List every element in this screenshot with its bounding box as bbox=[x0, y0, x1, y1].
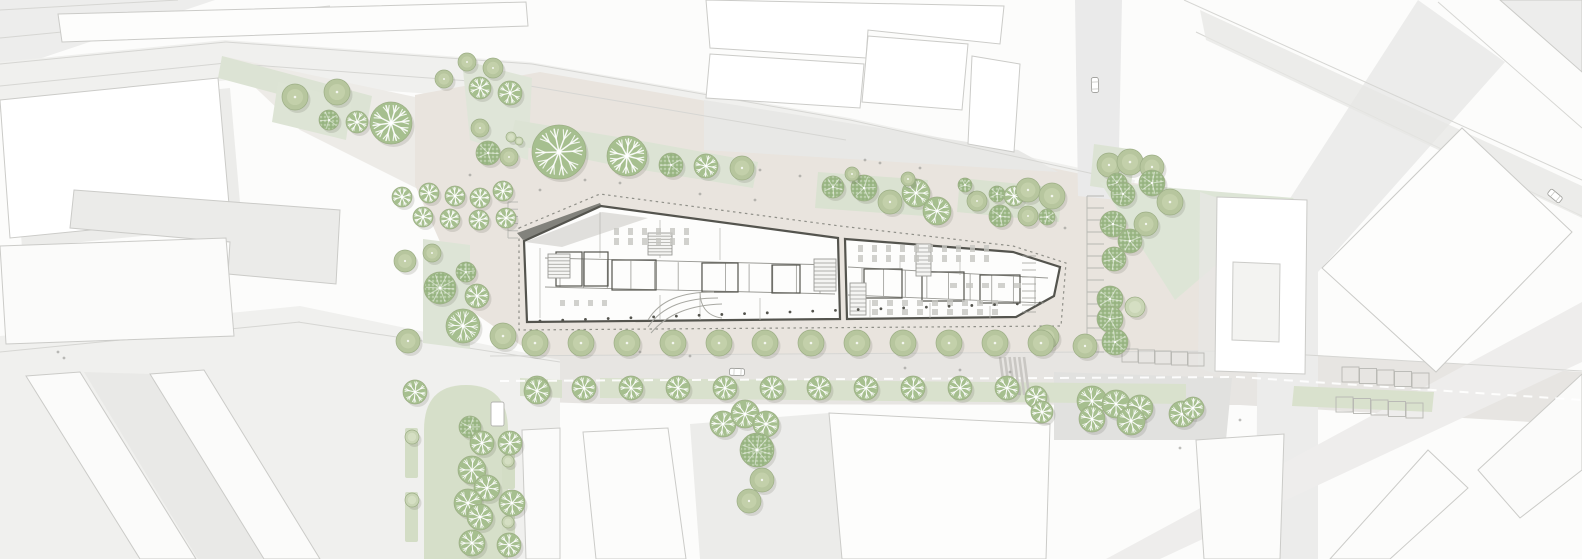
furniture bbox=[966, 283, 973, 288]
tree-center bbox=[863, 187, 865, 189]
tree-center bbox=[404, 260, 406, 262]
ground-dot bbox=[539, 189, 542, 192]
tree-center bbox=[466, 61, 468, 63]
furniture bbox=[642, 228, 647, 235]
tree-center bbox=[915, 192, 918, 195]
tree-center bbox=[771, 387, 773, 389]
ground-dot bbox=[864, 159, 867, 162]
ctx-bm-2 bbox=[829, 413, 1050, 559]
tree-branch bbox=[488, 153, 498, 154]
ground-dot bbox=[469, 174, 472, 177]
tree-center bbox=[492, 67, 494, 69]
furniture bbox=[998, 283, 1005, 288]
ctx-court-inner bbox=[1232, 262, 1280, 342]
ground-dot bbox=[584, 179, 587, 182]
ground-dot bbox=[1009, 371, 1012, 374]
tree-branch bbox=[903, 388, 913, 389]
column-dot bbox=[948, 305, 951, 308]
tree-canopy-inner bbox=[517, 139, 522, 144]
tree-center bbox=[748, 500, 750, 502]
column-dot bbox=[857, 308, 860, 311]
furniture bbox=[670, 228, 675, 235]
ground-dot bbox=[839, 181, 842, 184]
tree-center bbox=[1129, 240, 1131, 242]
tree-center bbox=[502, 190, 504, 192]
tree-twig bbox=[430, 198, 431, 202]
tree-center bbox=[1035, 396, 1037, 398]
tree-canopy-inner bbox=[408, 496, 416, 504]
tree-center bbox=[705, 165, 707, 167]
tree-center bbox=[1006, 387, 1008, 389]
car-icon bbox=[1091, 77, 1099, 92]
tree-center bbox=[1108, 164, 1110, 166]
tree-center bbox=[1151, 166, 1153, 168]
furniture bbox=[656, 228, 661, 235]
tree-center bbox=[1091, 418, 1093, 420]
car-body bbox=[729, 368, 744, 376]
tree-center bbox=[976, 200, 978, 202]
tree-center bbox=[439, 287, 442, 290]
tree-center bbox=[465, 271, 467, 273]
tree-twig bbox=[511, 99, 512, 103]
tree-branch bbox=[997, 194, 998, 201]
tree-center bbox=[467, 502, 470, 505]
tree-center bbox=[449, 218, 451, 220]
furniture bbox=[992, 309, 998, 315]
furniture bbox=[977, 300, 983, 306]
furniture bbox=[962, 300, 968, 306]
site-plan-canvas bbox=[0, 0, 1582, 559]
tree-center bbox=[1027, 215, 1029, 217]
tree-branch bbox=[631, 388, 641, 389]
column-dot bbox=[880, 307, 883, 310]
furniture bbox=[956, 245, 961, 252]
furniture bbox=[872, 255, 877, 262]
column-dot bbox=[902, 307, 905, 310]
furniture bbox=[858, 245, 863, 252]
ground-dot bbox=[57, 351, 60, 354]
ground-dot bbox=[699, 193, 702, 196]
furniture bbox=[947, 300, 953, 306]
tree-center bbox=[889, 201, 891, 203]
tree bbox=[392, 187, 415, 210]
tree-center bbox=[479, 87, 481, 89]
tree-center bbox=[431, 252, 433, 254]
tree-center bbox=[672, 342, 675, 345]
tree-center bbox=[1129, 161, 1132, 164]
tree-center bbox=[505, 217, 507, 219]
furniture bbox=[872, 300, 878, 306]
furniture bbox=[887, 300, 893, 306]
ctx-tr-corner bbox=[1500, 0, 1582, 72]
site-plan-svg bbox=[0, 0, 1582, 559]
ctx-bm-1 bbox=[583, 428, 686, 559]
tree-canopy-inner bbox=[508, 134, 514, 140]
tree-center bbox=[1114, 341, 1116, 343]
furniture bbox=[872, 309, 878, 315]
tree-center bbox=[724, 387, 726, 389]
tree-twig bbox=[420, 388, 424, 389]
furniture bbox=[956, 255, 961, 262]
furniture bbox=[886, 255, 891, 262]
tree-center bbox=[401, 196, 403, 198]
furniture bbox=[858, 255, 863, 262]
tree-center bbox=[471, 469, 474, 472]
tree-twig bbox=[563, 130, 564, 140]
ctx-tc-3 bbox=[862, 36, 968, 110]
furniture bbox=[962, 309, 968, 315]
furniture bbox=[656, 238, 661, 245]
tree-branch bbox=[320, 120, 329, 121]
furniture bbox=[970, 245, 975, 252]
ctx-ml-low bbox=[0, 238, 234, 344]
furniture bbox=[984, 255, 989, 262]
tree-center bbox=[1051, 195, 1054, 198]
furniture bbox=[932, 300, 938, 306]
furniture bbox=[588, 300, 593, 306]
tree-center bbox=[936, 210, 939, 213]
column-dot bbox=[630, 316, 633, 319]
column-dot bbox=[584, 318, 587, 321]
tree-center bbox=[670, 164, 672, 166]
tree-canopy-inner bbox=[504, 457, 511, 464]
tree-canopy-inner bbox=[1129, 301, 1141, 313]
column-dot bbox=[1039, 302, 1042, 305]
tree-center bbox=[856, 342, 859, 345]
tree-center bbox=[1122, 193, 1124, 195]
tree-center bbox=[902, 342, 905, 345]
tree-center bbox=[478, 219, 480, 221]
tree-branch bbox=[426, 287, 440, 288]
tree-center bbox=[744, 413, 747, 416]
furniture bbox=[950, 283, 957, 288]
tree-center bbox=[508, 156, 510, 158]
furniture bbox=[917, 309, 923, 315]
tree-branch bbox=[477, 295, 487, 296]
tree-center bbox=[1091, 400, 1094, 403]
tree-center bbox=[580, 342, 583, 345]
tree-twig bbox=[1095, 425, 1096, 430]
tree-center bbox=[476, 295, 478, 297]
tree-twig bbox=[465, 334, 466, 340]
furniture bbox=[1014, 283, 1021, 288]
column-dot bbox=[811, 310, 814, 313]
tree-branch bbox=[705, 166, 706, 176]
furniture bbox=[887, 309, 893, 315]
tree-center bbox=[471, 542, 473, 544]
ground-dot bbox=[904, 367, 907, 370]
tree bbox=[1031, 401, 1056, 426]
tree-center bbox=[534, 342, 537, 345]
tree-twig bbox=[394, 198, 398, 199]
furniture bbox=[628, 228, 633, 235]
tree-center bbox=[583, 387, 585, 389]
furniture bbox=[602, 300, 607, 306]
furniture bbox=[560, 300, 565, 306]
tree-center bbox=[994, 342, 997, 345]
tree-branch bbox=[508, 545, 509, 555]
furniture bbox=[942, 245, 947, 252]
furniture bbox=[684, 228, 689, 235]
tree-center bbox=[832, 186, 834, 188]
column-dot bbox=[720, 313, 723, 316]
ctx-tc-2 bbox=[706, 54, 864, 108]
tree-canopy-inner bbox=[504, 518, 511, 525]
tree-center bbox=[626, 342, 629, 345]
tree-center bbox=[1084, 345, 1086, 347]
column-dot bbox=[607, 317, 610, 320]
tree-center bbox=[907, 178, 909, 180]
furniture bbox=[917, 300, 923, 306]
column-dot bbox=[1016, 302, 1019, 305]
column-dot bbox=[743, 312, 746, 315]
column-dot bbox=[766, 311, 769, 314]
furniture bbox=[900, 255, 905, 262]
tree-twig bbox=[636, 153, 643, 154]
tree-branch bbox=[912, 388, 913, 398]
furniture bbox=[914, 255, 919, 262]
tree-center bbox=[511, 502, 513, 504]
tree-center bbox=[428, 192, 430, 194]
tree-center bbox=[630, 387, 632, 389]
ctx-br-1 bbox=[1196, 434, 1284, 559]
furniture bbox=[902, 300, 908, 306]
tree-center bbox=[1151, 182, 1153, 184]
car-body bbox=[1091, 77, 1099, 92]
furniture bbox=[902, 309, 908, 315]
ground-dot bbox=[879, 162, 882, 165]
tree-branch bbox=[865, 378, 866, 388]
column-dot bbox=[561, 319, 564, 322]
tree-center bbox=[389, 121, 393, 125]
tree-branch bbox=[1113, 224, 1114, 235]
tree-twig bbox=[721, 379, 722, 383]
ground-dot bbox=[754, 199, 757, 202]
car-icon bbox=[729, 368, 744, 376]
tree-center bbox=[1041, 411, 1043, 413]
furniture bbox=[928, 255, 933, 262]
tree-center bbox=[718, 342, 721, 345]
tree-center bbox=[1013, 195, 1015, 197]
furniture bbox=[614, 238, 619, 245]
tree-center bbox=[487, 152, 489, 154]
tree-twig bbox=[610, 158, 617, 159]
furniture bbox=[900, 245, 905, 252]
tree-center bbox=[454, 195, 456, 197]
tree-center bbox=[336, 91, 339, 94]
tree-center bbox=[328, 119, 330, 121]
ground-dot bbox=[959, 369, 962, 372]
tree-branch bbox=[454, 187, 455, 196]
tree-twig bbox=[1146, 404, 1151, 405]
tree-center bbox=[481, 442, 483, 444]
tree-center bbox=[810, 342, 813, 345]
tree-branch bbox=[536, 152, 559, 153]
tree-twig bbox=[488, 441, 492, 442]
tree-branch bbox=[678, 378, 679, 388]
column-dot bbox=[789, 311, 792, 314]
furniture bbox=[886, 245, 891, 252]
ctx-tc-4 bbox=[968, 56, 1020, 152]
tree-center bbox=[865, 387, 867, 389]
column-dot bbox=[652, 316, 655, 319]
tree-center bbox=[1109, 298, 1111, 300]
tree-center bbox=[625, 154, 629, 158]
tree-center bbox=[502, 335, 505, 338]
tree-center bbox=[964, 184, 966, 186]
tree-center bbox=[1145, 223, 1147, 225]
tree-canopy-inner bbox=[408, 433, 416, 441]
kiosk bbox=[491, 402, 504, 426]
furniture bbox=[932, 309, 938, 315]
tree-center bbox=[677, 387, 679, 389]
tree-branch bbox=[479, 198, 480, 207]
ground-dot bbox=[619, 182, 622, 185]
tree-center bbox=[764, 342, 767, 345]
tree-center bbox=[1113, 258, 1115, 260]
ctx-bm-left bbox=[522, 428, 560, 559]
tree-center bbox=[741, 167, 743, 169]
tree-twig bbox=[697, 169, 701, 170]
tree-center bbox=[557, 150, 562, 155]
tree-branch bbox=[712, 423, 723, 424]
tree-center bbox=[1109, 318, 1111, 320]
tree-center bbox=[469, 426, 471, 428]
tree-center bbox=[851, 173, 853, 175]
tree-center bbox=[1027, 189, 1029, 191]
furniture bbox=[947, 309, 953, 315]
tree-center bbox=[1130, 420, 1133, 423]
tree-center bbox=[1139, 407, 1141, 409]
ground-dot bbox=[689, 355, 692, 358]
tree-center bbox=[765, 423, 767, 425]
tree-center bbox=[536, 390, 538, 392]
tree-branch bbox=[509, 433, 510, 443]
tree-center bbox=[1169, 201, 1172, 204]
tree-center bbox=[479, 516, 481, 518]
furniture bbox=[982, 283, 989, 288]
tree-twig bbox=[449, 330, 455, 331]
tree-center bbox=[422, 216, 424, 218]
tree-center bbox=[508, 544, 510, 546]
furniture bbox=[642, 238, 647, 245]
furniture bbox=[614, 228, 619, 235]
furniture bbox=[914, 245, 919, 252]
tree-center bbox=[461, 324, 464, 327]
column-dot bbox=[993, 303, 996, 306]
tree-center bbox=[818, 387, 820, 389]
tree-branch bbox=[864, 187, 875, 188]
tree-center bbox=[722, 423, 724, 425]
ground-dot bbox=[1064, 227, 1067, 230]
tree-center bbox=[755, 448, 758, 451]
ground-dot bbox=[799, 175, 802, 178]
tree-branch bbox=[904, 192, 916, 193]
tree-center bbox=[999, 215, 1001, 217]
column-dot bbox=[539, 320, 542, 323]
tree-center bbox=[407, 340, 409, 342]
tree-center bbox=[1181, 413, 1183, 415]
furniture bbox=[928, 245, 933, 252]
tree-center bbox=[1112, 223, 1114, 225]
tree-branch bbox=[479, 220, 480, 229]
column-dot bbox=[970, 304, 973, 307]
ground-dot bbox=[919, 167, 922, 170]
tree-center bbox=[761, 479, 763, 481]
tree-center bbox=[1040, 342, 1043, 345]
tree bbox=[394, 250, 419, 275]
tree-branch bbox=[512, 503, 513, 514]
tree-center bbox=[509, 442, 511, 444]
tree-center bbox=[356, 121, 358, 123]
furniture bbox=[984, 245, 989, 252]
tree-center bbox=[479, 127, 481, 129]
tree-center bbox=[959, 387, 961, 389]
ground-dot bbox=[1239, 419, 1242, 422]
tree-center bbox=[294, 96, 297, 99]
column-dot bbox=[834, 309, 837, 312]
tree-center bbox=[1192, 407, 1194, 409]
tree-branch bbox=[503, 191, 512, 192]
furniture bbox=[970, 255, 975, 262]
furniture bbox=[628, 238, 633, 245]
tree-twig bbox=[415, 216, 419, 217]
furniture bbox=[977, 309, 983, 315]
furniture bbox=[670, 238, 675, 245]
tree-center bbox=[443, 78, 445, 80]
tree-center bbox=[912, 387, 914, 389]
tree-center bbox=[479, 197, 481, 199]
tree-center bbox=[1046, 216, 1048, 218]
ground-dot bbox=[63, 357, 66, 360]
furniture bbox=[684, 238, 689, 245]
tree-center bbox=[486, 487, 488, 489]
furniture bbox=[942, 255, 947, 262]
column-dot bbox=[698, 314, 701, 317]
ground-dot bbox=[1179, 447, 1182, 450]
column-dot bbox=[675, 315, 678, 318]
tree-center bbox=[414, 391, 416, 393]
tree-center bbox=[509, 92, 511, 94]
tree-branch bbox=[631, 388, 632, 398]
ground-dot bbox=[759, 169, 762, 172]
ground-dot bbox=[639, 351, 642, 354]
furniture bbox=[574, 300, 579, 306]
tree-center bbox=[948, 342, 951, 345]
tree-center bbox=[996, 193, 998, 195]
tree-twig bbox=[632, 165, 633, 172]
tree-center bbox=[1115, 403, 1118, 406]
furniture bbox=[872, 245, 877, 252]
column-dot bbox=[925, 306, 928, 309]
